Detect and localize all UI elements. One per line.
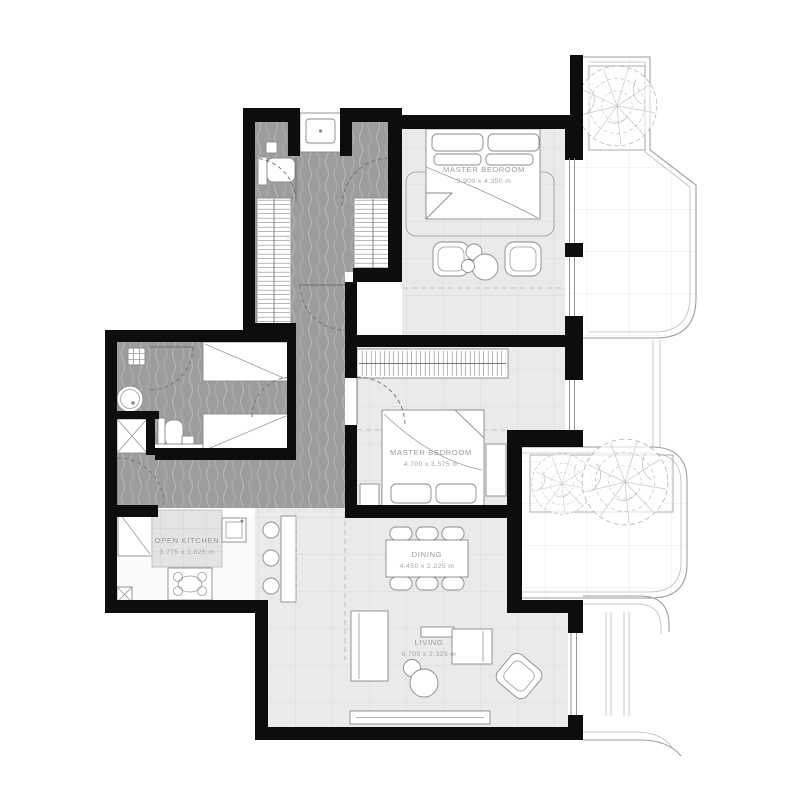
corridor-floor [296,323,345,455]
bar-stool [263,550,279,566]
nightstand [360,484,379,507]
wall [146,411,155,455]
console-shelf [421,627,454,637]
sofa [351,611,388,681]
wall [105,330,117,510]
stove [168,568,212,600]
shelf [266,142,277,153]
wall [345,335,583,347]
pillow [391,484,431,503]
wall [345,505,507,518]
wall [288,108,300,156]
wall [565,335,583,380]
pillow [488,134,539,151]
shower-head [128,348,145,365]
wall [388,122,402,272]
window [570,380,575,430]
pillow [436,484,476,503]
side-table [472,254,498,280]
pillow [434,154,481,165]
toilet [267,158,295,182]
toilet [165,420,183,446]
coffee-table [410,669,438,697]
wall [255,727,583,740]
hallway-floor [117,455,345,508]
dining-chair [416,577,438,590]
tree-icon [577,66,657,146]
room-dims: 4.700 x 3.575 m [404,461,459,468]
wall [287,335,296,455]
wall [345,282,357,335]
dining-table-chair [442,577,464,590]
side-table [462,260,475,273]
pillow [486,154,533,165]
wall [565,243,583,257]
dining-chair [390,527,412,540]
dresser [486,444,506,496]
window [571,633,577,715]
room-dims: 3.775 x 1.825 m [160,549,215,556]
dining-chair [390,577,412,590]
wall [568,600,583,633]
dining-chair [442,527,464,540]
balcony-3-top-inner [583,604,661,634]
wall [507,430,583,447]
floor-plan-page: MASTER BEDROOM 3.900 x 4.350 m MASTER BE… [0,0,800,800]
balcony-top-right [570,57,696,338]
toilet-tank [258,157,267,185]
balcony-3-top-outer [583,596,669,632]
wall [243,122,255,337]
wall [105,505,117,613]
faucet [319,129,322,132]
dining-chair [416,527,438,540]
pillow [432,134,483,151]
sink-faucet [241,520,244,523]
wall [565,115,583,160]
room-label: LIVING [415,638,444,647]
room-dims: 6.700 x 2.325 m [402,651,457,658]
toilet-tank [158,418,165,446]
room-label: MASTER BEDROOM [443,165,525,174]
floor-plan-canvas: MASTER BEDROOM 3.900 x 4.350 m MASTER BE… [0,0,800,800]
room-label: OPEN KITCHEN [155,536,220,545]
wash-basin [182,436,194,444]
room-dims: 3.900 x 4.350 m [457,178,512,185]
wall [390,115,583,129]
wall [570,55,583,117]
room-label: WALK-IN CLOSET [286,233,359,242]
bar-stool [263,522,279,538]
balcony-3-bottom-outer [583,740,681,756]
balcony-mid-right [522,439,687,598]
wall [353,268,402,282]
washing-machine-dot [131,401,135,405]
wall [255,600,268,740]
balcony-3-divider [606,612,629,716]
sofa-chaise [452,629,492,664]
room-label: MASTER BEDROOM [390,448,472,457]
bar-stool [263,578,279,594]
tree-icon [582,439,668,525]
wall [345,347,357,378]
wall [105,330,287,342]
wall [345,425,357,508]
room-dims: 4.450 x 2.225 m [400,563,455,570]
room-label: DINING [412,550,442,559]
wall [507,447,522,600]
wall [155,448,296,460]
kitchen-island [281,516,296,602]
wall [105,600,268,613]
railing-connector [653,340,660,447]
